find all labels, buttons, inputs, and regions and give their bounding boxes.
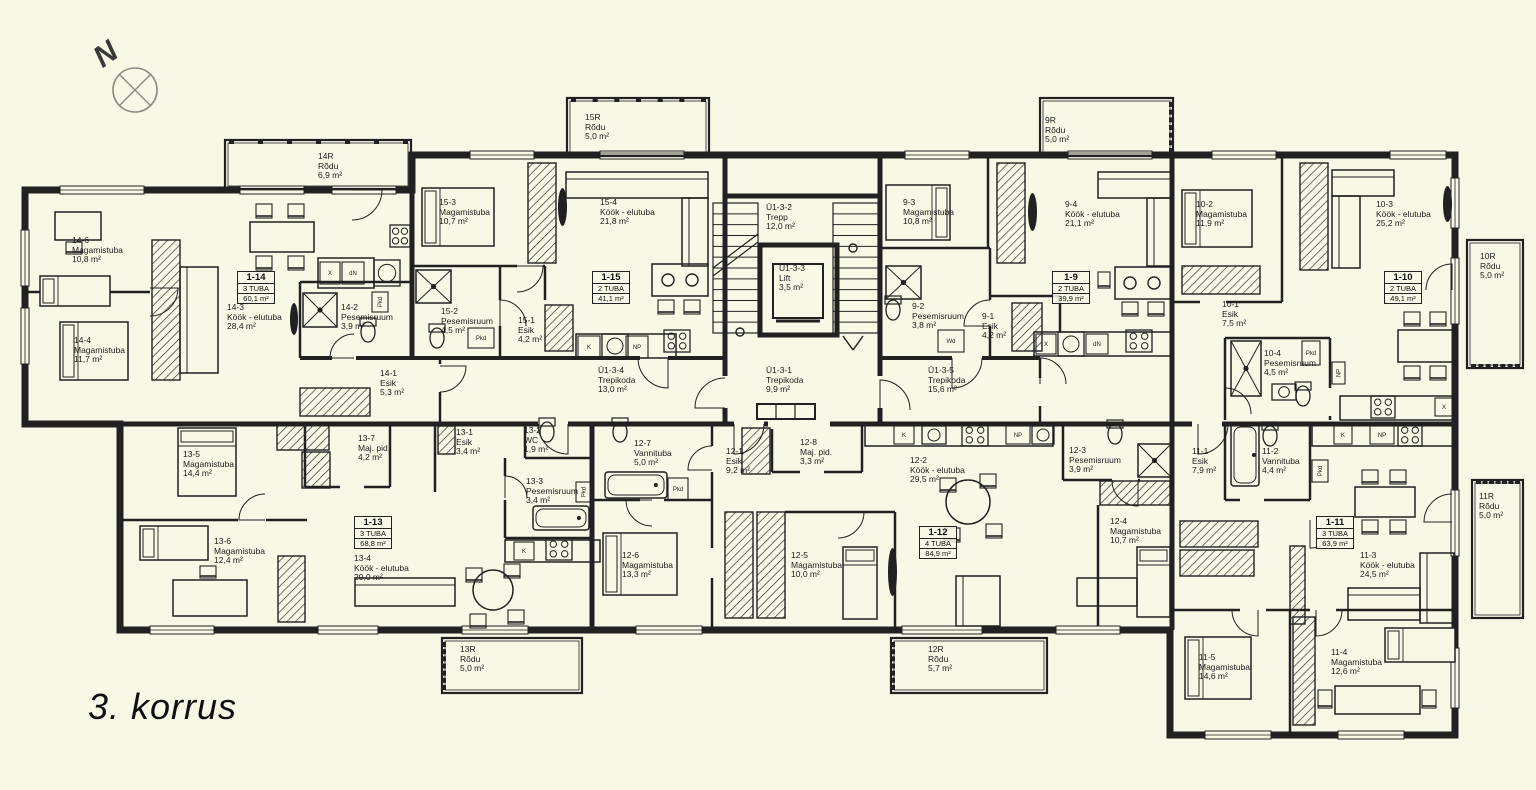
north-letter: N — [88, 34, 125, 74]
svg-text:NP: NP — [1014, 433, 1022, 439]
north-arrow-icon: N — [88, 28, 188, 138]
svg-text:NP: NP — [633, 345, 641, 351]
svg-text:Wd: Wd — [947, 339, 956, 345]
svg-text:Pkd: Pkd — [1318, 466, 1324, 476]
svg-text:Pkd: Pkd — [582, 487, 588, 497]
svg-text:K: K — [1341, 433, 1345, 439]
svg-text:NP: NP — [1378, 433, 1386, 439]
svg-text:K: K — [902, 433, 906, 439]
page-title: 3. korrus — [88, 686, 237, 728]
svg-text:Pkd: Pkd — [673, 487, 683, 493]
svg-text:Pkd: Pkd — [1306, 351, 1316, 357]
svg-text:X: X — [1044, 342, 1048, 348]
svg-text:dN: dN — [349, 271, 357, 277]
svg-text:K: K — [522, 549, 526, 555]
svg-text:Pkd: Pkd — [378, 297, 384, 307]
svg-text:Pkd: Pkd — [476, 336, 486, 342]
svg-text:dN: dN — [1093, 342, 1101, 348]
svg-text:K: K — [587, 345, 591, 351]
svg-text:X: X — [328, 271, 332, 277]
svg-text:NP: NP — [1337, 369, 1343, 377]
floorplan-svg: XdNPkdPkdKNPWdXdNPkdNPXKNPKKNPPkdPkdPkd — [0, 0, 1536, 790]
svg-text:X: X — [1442, 405, 1446, 411]
floor-plan-page: XdNPkdPkdKNPWdXdNPkdNPXKNPKKNPPkdPkdPkd … — [0, 0, 1536, 790]
